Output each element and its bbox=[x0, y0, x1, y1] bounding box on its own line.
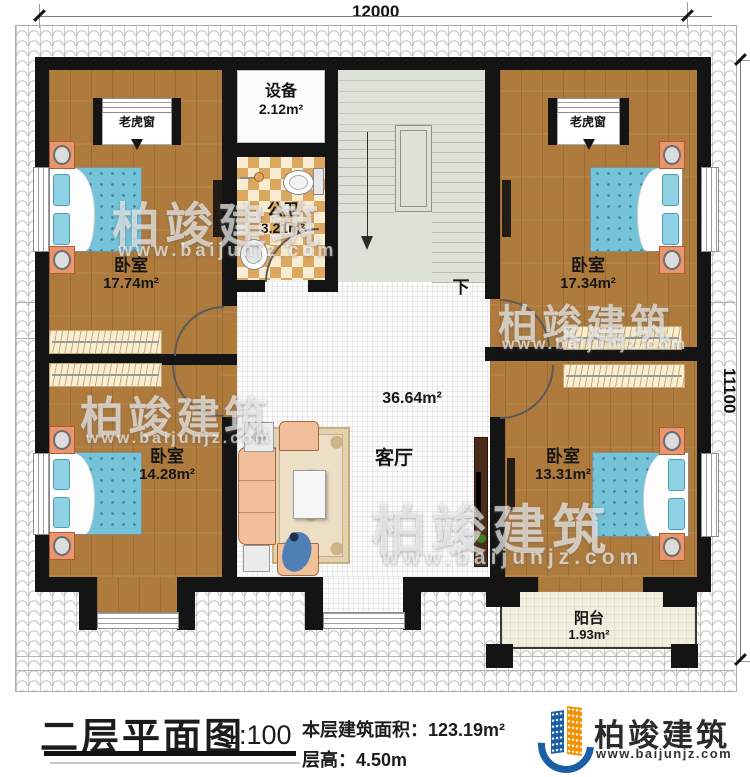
side-table bbox=[243, 545, 270, 572]
room-label-living: 客厅 bbox=[375, 449, 413, 469]
bay-living-flank bbox=[403, 577, 421, 630]
room-label-equipment: 设备 bbox=[265, 84, 297, 101]
nightstand bbox=[49, 426, 75, 454]
stair-landing-lines bbox=[339, 80, 484, 125]
floor-area-text: 本层建筑面积：123.19m² bbox=[302, 716, 505, 742]
dormer-tr-side bbox=[548, 98, 557, 145]
bay-bl-flank bbox=[177, 577, 195, 630]
nightstand bbox=[659, 246, 685, 274]
doorway-bl-floor bbox=[222, 365, 237, 419]
roof-seam bbox=[15, 670, 735, 671]
bay-window-living bbox=[323, 612, 405, 629]
bay-window-bl bbox=[97, 612, 179, 629]
nightstand bbox=[49, 246, 75, 274]
coffee-table bbox=[293, 470, 326, 519]
lamp-icon bbox=[53, 145, 71, 165]
room-area-bedroom-bl: 14.28m² bbox=[139, 467, 195, 483]
sink-basin bbox=[245, 245, 262, 264]
tv-bedroom-br bbox=[507, 458, 515, 510]
floor-plan-page: 老虎窗 老虎窗 bbox=[0, 0, 750, 777]
room-area-bathroom: 3.21m² bbox=[261, 221, 305, 236]
title-underline-thin bbox=[50, 762, 300, 764]
bay-bl-flank bbox=[79, 577, 97, 630]
roof-seam bbox=[710, 302, 735, 303]
wall-bathroom-bottom bbox=[237, 280, 265, 292]
wardrobe-rail bbox=[566, 375, 682, 377]
dimension-line-top bbox=[40, 16, 712, 17]
lamp-icon bbox=[53, 536, 71, 556]
lamp-icon bbox=[663, 145, 681, 165]
doorway-tl-floor bbox=[222, 306, 237, 356]
stair-void-inner bbox=[400, 130, 427, 207]
title-underline bbox=[44, 751, 296, 756]
room-area-bedroom-tr: 17.34m² bbox=[560, 276, 616, 292]
dimension-height: 11100 bbox=[719, 368, 739, 413]
room-area-equipment: 2.12m² bbox=[259, 102, 303, 117]
pillow bbox=[53, 213, 70, 245]
lamp-icon bbox=[663, 250, 681, 270]
room-label-bathroom: 公卫 bbox=[267, 203, 299, 220]
dormer-tl-side bbox=[172, 98, 181, 145]
pillow bbox=[668, 459, 685, 491]
lamp-icon bbox=[663, 431, 681, 451]
wardrobe bbox=[49, 330, 162, 354]
tv-living bbox=[476, 472, 481, 520]
armchair bbox=[279, 421, 319, 451]
nightstand bbox=[659, 533, 685, 561]
wall-bedroom-tl-right bbox=[222, 70, 237, 306]
plan-scale: 1:100 bbox=[224, 720, 292, 751]
balcony-post bbox=[486, 644, 513, 668]
nightstand bbox=[49, 141, 75, 169]
toilet-seat bbox=[289, 175, 308, 190]
wall-stairs-right bbox=[485, 70, 500, 299]
bay-living-floor bbox=[323, 577, 403, 614]
balcony-doorway-floor bbox=[538, 577, 643, 593]
balcony-post bbox=[663, 590, 697, 607]
dormer-tr-glass bbox=[557, 98, 620, 113]
dimension-line-right bbox=[740, 60, 741, 662]
window-right-tr bbox=[701, 167, 719, 252]
room-label-bedroom-bl: 卧室 bbox=[150, 448, 184, 466]
logo-tower-orange bbox=[567, 706, 582, 756]
roof-seam bbox=[15, 656, 735, 657]
pillow bbox=[662, 213, 679, 245]
dimension-width: 12000 bbox=[352, 2, 399, 22]
wardrobe bbox=[49, 363, 162, 387]
pillow bbox=[662, 174, 679, 206]
wall-bedroom-br-left bbox=[490, 417, 505, 577]
dormer-tr-pointer bbox=[583, 139, 595, 150]
balcony-post bbox=[486, 590, 520, 607]
dormer-tl-side bbox=[93, 98, 102, 145]
nightstand bbox=[659, 141, 685, 169]
lamp-icon bbox=[53, 430, 71, 450]
company-website: www.baijunjz.com bbox=[596, 746, 732, 761]
roof-seam bbox=[15, 302, 36, 303]
wardrobe-rail bbox=[52, 341, 159, 343]
toilet-tank bbox=[313, 168, 324, 195]
room-label-bedroom-tl: 卧室 bbox=[114, 257, 148, 275]
bay-living-flank bbox=[305, 577, 323, 630]
room-area-bedroom-tl: 17.74m² bbox=[103, 276, 159, 292]
stair-treads-right bbox=[432, 125, 485, 283]
pillow bbox=[53, 174, 70, 206]
tv-bedroom-tr bbox=[502, 180, 511, 237]
sofa bbox=[238, 447, 276, 545]
dormer-tr-side bbox=[620, 98, 629, 145]
room-label-bedroom-br: 卧室 bbox=[546, 448, 580, 466]
logo-tower-blue bbox=[551, 710, 564, 754]
wardrobe-rail bbox=[52, 374, 159, 376]
room-label-balcony: 阳台 bbox=[574, 611, 604, 627]
wall-equipment-bottom bbox=[237, 143, 325, 157]
room-area-balcony: 1.93m² bbox=[568, 628, 609, 642]
person-head bbox=[288, 531, 299, 542]
floor-height-text: 层高：4.50m bbox=[302, 746, 407, 772]
roof-seam bbox=[15, 338, 36, 339]
lamp-icon bbox=[663, 537, 681, 557]
nightstand bbox=[49, 532, 75, 560]
balcony-post bbox=[671, 644, 698, 668]
bed-tr bbox=[590, 167, 683, 252]
room-area-bedroom-br: 13.31m² bbox=[535, 467, 591, 483]
bed-tl bbox=[49, 167, 142, 252]
wall-bottom bbox=[177, 577, 323, 592]
table-lamp-icon bbox=[251, 429, 268, 446]
dimension-ext bbox=[740, 661, 750, 662]
bay-bl-floor bbox=[97, 577, 177, 614]
dormer-tr-label: 老虎窗 bbox=[570, 116, 606, 129]
pillow bbox=[668, 498, 685, 530]
side-table bbox=[244, 422, 274, 452]
dormer-tl-pointer bbox=[131, 139, 143, 150]
pillow bbox=[53, 497, 70, 528]
bed-bl bbox=[49, 452, 142, 535]
pillow bbox=[53, 459, 70, 490]
wardrobe-rail bbox=[566, 337, 679, 339]
room-area-living: 36.64m² bbox=[382, 391, 442, 408]
stair-direction-line bbox=[367, 132, 368, 238]
plant-icon bbox=[477, 534, 486, 543]
company-logo-icon bbox=[540, 705, 590, 767]
dormer-tl-label: 老虎窗 bbox=[119, 116, 155, 129]
wardrobe bbox=[563, 326, 682, 350]
room-label-bedroom-tr: 卧室 bbox=[571, 257, 605, 275]
roof-seam bbox=[710, 338, 735, 339]
wall-equipment-right bbox=[325, 70, 338, 292]
window-right-br bbox=[701, 453, 719, 537]
lamp-icon bbox=[53, 250, 71, 270]
wall-top bbox=[35, 57, 711, 70]
towel-ring bbox=[254, 172, 264, 182]
wall-bedroom-bl-right bbox=[222, 417, 237, 577]
bed-br bbox=[592, 452, 689, 537]
stair-down-arrow bbox=[361, 236, 373, 250]
wardrobe bbox=[563, 364, 685, 388]
nightstand bbox=[659, 427, 685, 455]
stairs-down-label: 下 bbox=[453, 279, 470, 297]
dormer-tl-glass bbox=[102, 98, 172, 113]
tv-bedroom-tl bbox=[213, 180, 222, 237]
